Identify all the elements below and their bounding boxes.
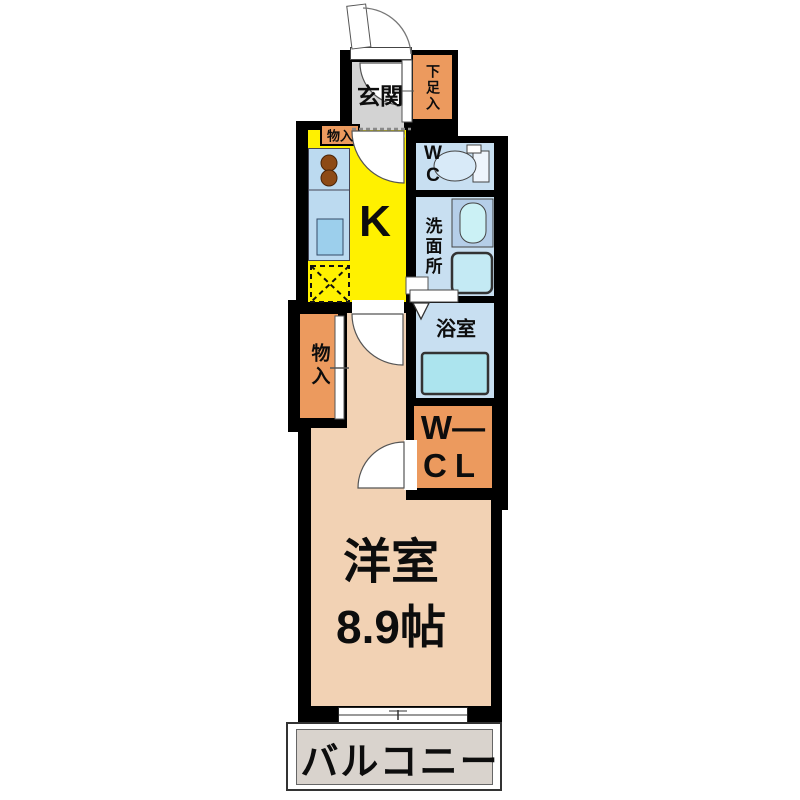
main-room-mid — [311, 428, 406, 504]
balcony-label: バルコニー — [300, 731, 499, 786]
toilet-room-label: W C — [420, 143, 446, 187]
shoe-storage-label: 下足入 — [423, 64, 443, 112]
door-gap-kitchen-room — [352, 300, 404, 314]
floor-plan: 玄関 下足入 物入 K W C 洗面所 浴室 W— CL 物入 洋室 8.9帖 … — [0, 0, 800, 800]
western-room-size: 8.9帖 — [336, 595, 446, 659]
washroom-label: 洗面所 — [420, 217, 445, 277]
front-door-leaf — [347, 4, 371, 49]
closet-label: 物入 — [306, 343, 333, 389]
balcony-window — [338, 707, 468, 723]
door-gap-wcl — [404, 440, 417, 490]
toilet-label-line2: C — [420, 165, 446, 187]
wcl-label-line1: W— — [421, 409, 485, 447]
kitchen-label: K — [359, 197, 391, 247]
wcl-label-line2: CL — [421, 447, 485, 485]
entrance-label: 玄関 — [357, 77, 403, 111]
kitchen-storage-label: 物入 — [327, 126, 353, 145]
western-room-label: 洋室 8.9帖 — [336, 531, 446, 659]
walk-in-closet-label: W— CL — [421, 409, 485, 485]
bathroom-label: 浴室 — [436, 313, 476, 342]
entrance-threshold — [350, 47, 412, 60]
toilet-label-line1: W — [420, 143, 446, 165]
western-room-name: 洋室 — [336, 531, 446, 595]
kitchen-counter — [308, 148, 350, 261]
main-room-top — [347, 313, 406, 428]
